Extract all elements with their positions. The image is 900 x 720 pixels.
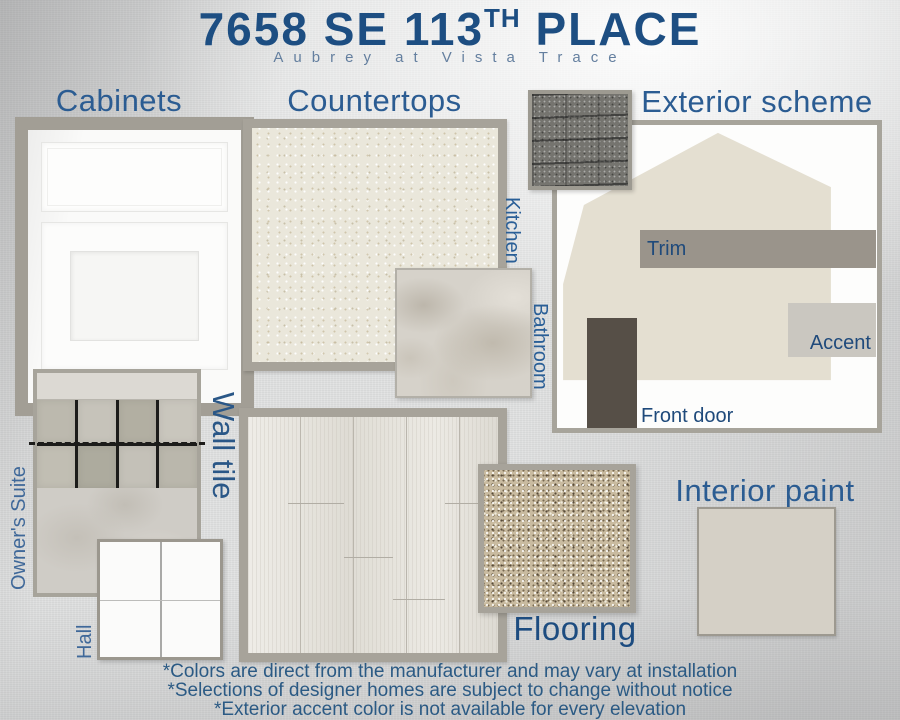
front-door-color-rect — [587, 318, 637, 428]
flooring-heading: Flooring — [500, 610, 650, 648]
trim-color-bar: Trim — [640, 230, 876, 268]
accent-color-rect: Accent — [788, 303, 876, 357]
interior-paint-swatch — [697, 507, 836, 636]
plank-joint — [344, 557, 393, 558]
wood-flooring-swatch — [239, 408, 507, 662]
owners-suite-label: Owner's Suite — [8, 466, 31, 590]
mosaic-tile — [78, 400, 116, 443]
cabinet-door-panel — [70, 251, 199, 341]
kitchen-label: Kitchen — [500, 197, 523, 264]
tile-ledge — [37, 373, 197, 400]
address-tail: PLACE — [536, 3, 702, 55]
hall-label: Hall — [74, 625, 97, 659]
mosaic-tile — [119, 400, 157, 443]
carpet-swatch — [478, 464, 636, 613]
front-door-label: Front door — [641, 405, 733, 428]
mosaic-tile — [37, 446, 75, 489]
mosaic-tile — [119, 446, 157, 489]
bathroom-label: Bathroom — [528, 303, 551, 390]
plank-joint — [393, 599, 445, 600]
cabinets-heading: Cabinets — [10, 83, 228, 119]
disclaimer-line-1: *Colors are direct from the manufacturer… — [0, 662, 900, 681]
cabinet-drawer-front — [41, 142, 228, 212]
accent-label: Accent — [810, 332, 871, 355]
address-main: 7658 SE 113 — [199, 3, 484, 55]
wall-tile-heading: Wall tile — [205, 392, 241, 499]
page-title: 7658 SE 113TH PLACE — [0, 2, 900, 56]
cabinet-drawer-inset — [47, 148, 222, 206]
community-subtitle: Aubrey at Vista Trace — [0, 49, 900, 66]
tile-grout-horizontal — [100, 600, 220, 601]
mosaic-tile — [78, 446, 116, 489]
roof-shingle-swatch — [528, 90, 632, 190]
plank-joint — [288, 503, 344, 504]
interior-paint-heading: Interior paint — [655, 473, 875, 509]
mosaic-dashed-line — [29, 442, 205, 445]
disclaimer-text: *Colors are direct from the manufacturer… — [0, 662, 900, 719]
disclaimer-line-3: *Exterior accent color is not available … — [0, 700, 900, 719]
cabinet-door-front — [41, 222, 228, 370]
mosaic-tile — [159, 400, 197, 443]
disclaimer-line-2: *Selections of designer homes are subjec… — [0, 681, 900, 700]
address-superscript: TH — [484, 3, 521, 33]
trim-label: Trim — [647, 238, 686, 260]
mosaic-tile — [159, 446, 197, 489]
bathroom-countertop-swatch — [395, 268, 532, 398]
hall-tile-swatch — [97, 539, 223, 660]
countertops-heading: Countertops — [252, 83, 497, 119]
exterior-scheme-heading: Exterior scheme — [627, 84, 887, 120]
mosaic-tile — [37, 400, 75, 443]
